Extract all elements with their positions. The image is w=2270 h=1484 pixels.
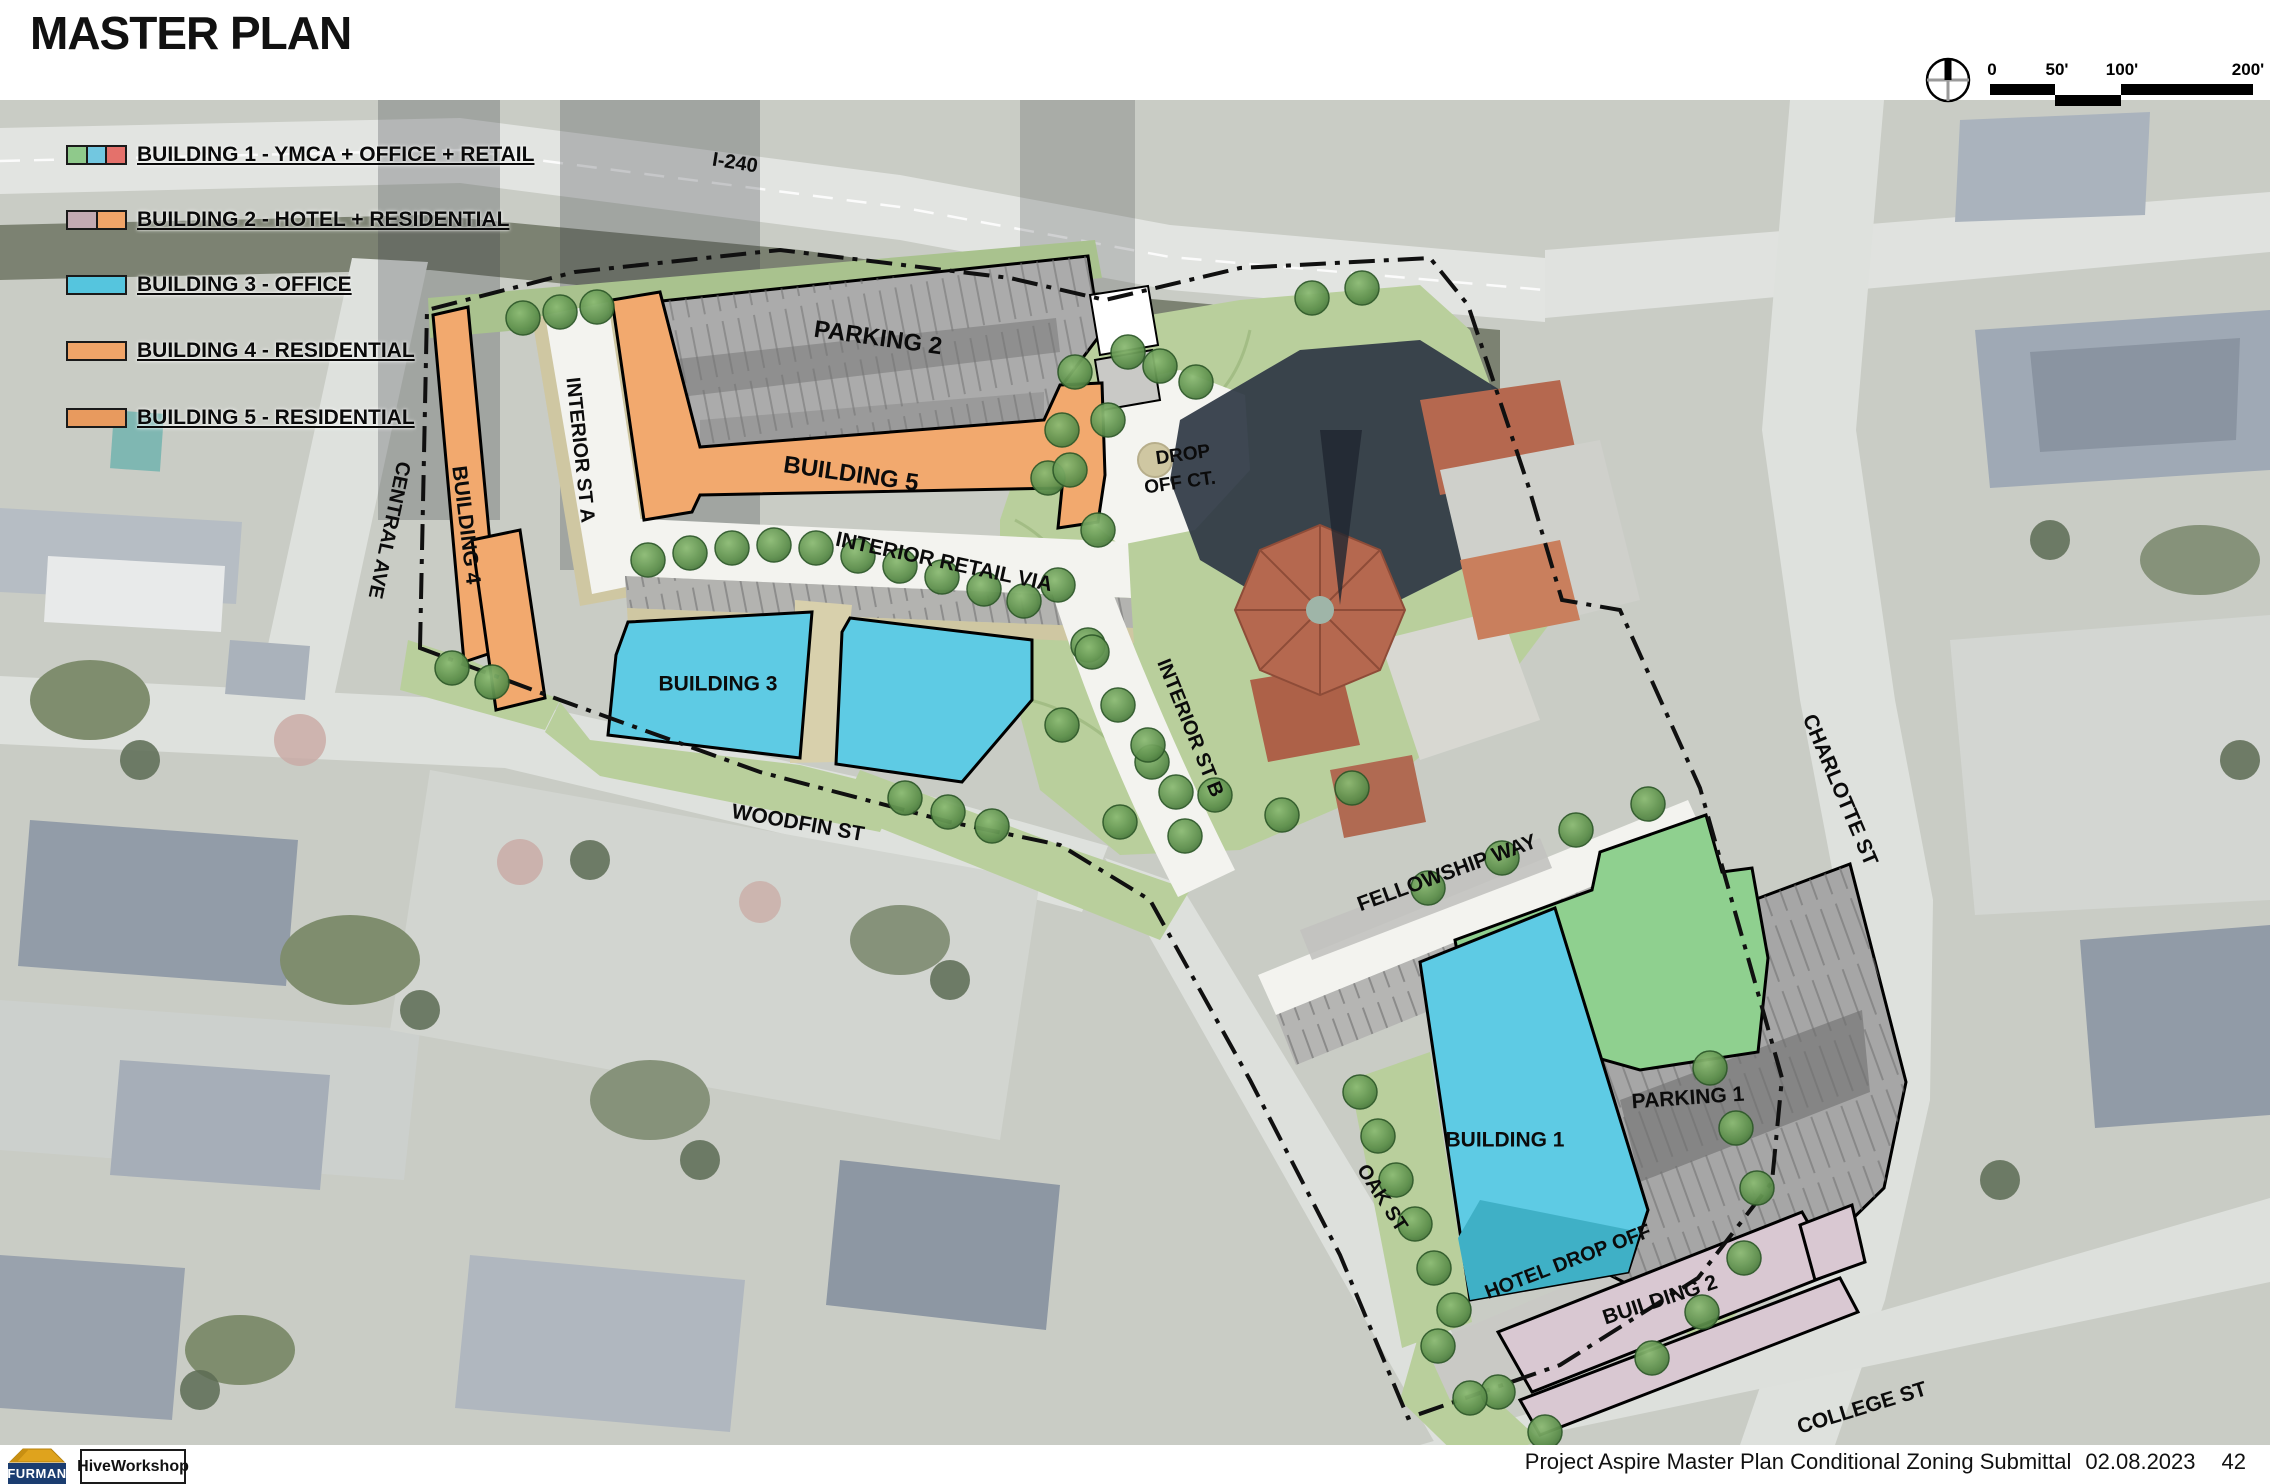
legend-label-building-5: BUILDING 5 - RESIDENTIAL — [137, 406, 415, 430]
footer-date: 02.08.2023 — [2085, 1449, 2195, 1474]
scale-bar: 0 50' 100' 200' — [1987, 60, 2264, 106]
hiveworkshop-logo-text: HiveWorkshop — [77, 1458, 189, 1476]
master-plan-sheet: I-240 CENTRAL AVE INTERIOR ST A PARKING … — [0, 0, 2270, 1484]
legend-swatch-building-2 — [66, 210, 127, 230]
legend-item-building-4: BUILDING 4 - RESIDENTIAL — [66, 338, 415, 364]
legend-item-building-1: BUILDING 1 - YMCA + OFFICE + RETAIL — [66, 142, 534, 168]
legend-label-building-4: BUILDING 4 - RESIDENTIAL — [137, 339, 415, 363]
furman-logo-text: FURMAN — [8, 1463, 66, 1484]
hiveworkshop-logo: HiveWorkshop — [80, 1449, 186, 1484]
legend-swatch-building-1 — [66, 145, 127, 165]
page-title: MASTER PLAN — [30, 6, 351, 60]
legend-swatch-building-5 — [66, 408, 127, 428]
footer-page-number: 42 — [2222, 1449, 2246, 1474]
legend-label-building-2: BUILDING 2 - HOTEL + RESIDENTIAL — [137, 208, 509, 232]
furman-logo-icon — [8, 1447, 66, 1463]
legend-swatch-building-3 — [66, 275, 127, 295]
footer: Project Aspire Master Plan Conditional Z… — [1525, 1449, 2246, 1475]
legend-item-building-5: BUILDING 5 - RESIDENTIAL — [66, 405, 415, 431]
legend-swatch-building-4 — [66, 341, 127, 361]
scale-label-50: 50' — [2046, 60, 2069, 79]
legend-item-building-3: BUILDING 3 - OFFICE — [66, 272, 352, 298]
scale-label-0: 0 — [1987, 60, 1996, 79]
legend-label-building-3: BUILDING 3 - OFFICE — [137, 273, 352, 297]
legend-item-building-2: BUILDING 2 - HOTEL + RESIDENTIAL — [66, 207, 509, 233]
scale-label-200: 200' — [2232, 60, 2264, 79]
legend-label-building-1: BUILDING 1 - YMCA + OFFICE + RETAIL — [137, 143, 534, 167]
north-arrow-icon — [1927, 59, 1969, 101]
area-label-building-1: BUILDING 1 — [1445, 1129, 1564, 1152]
scale-label-100: 100' — [2106, 60, 2138, 79]
footer-title: Project Aspire Master Plan Conditional Z… — [1525, 1449, 2072, 1474]
furman-logo: FURMAN — [8, 1447, 66, 1484]
area-label-building-3: BUILDING 3 — [658, 673, 777, 696]
